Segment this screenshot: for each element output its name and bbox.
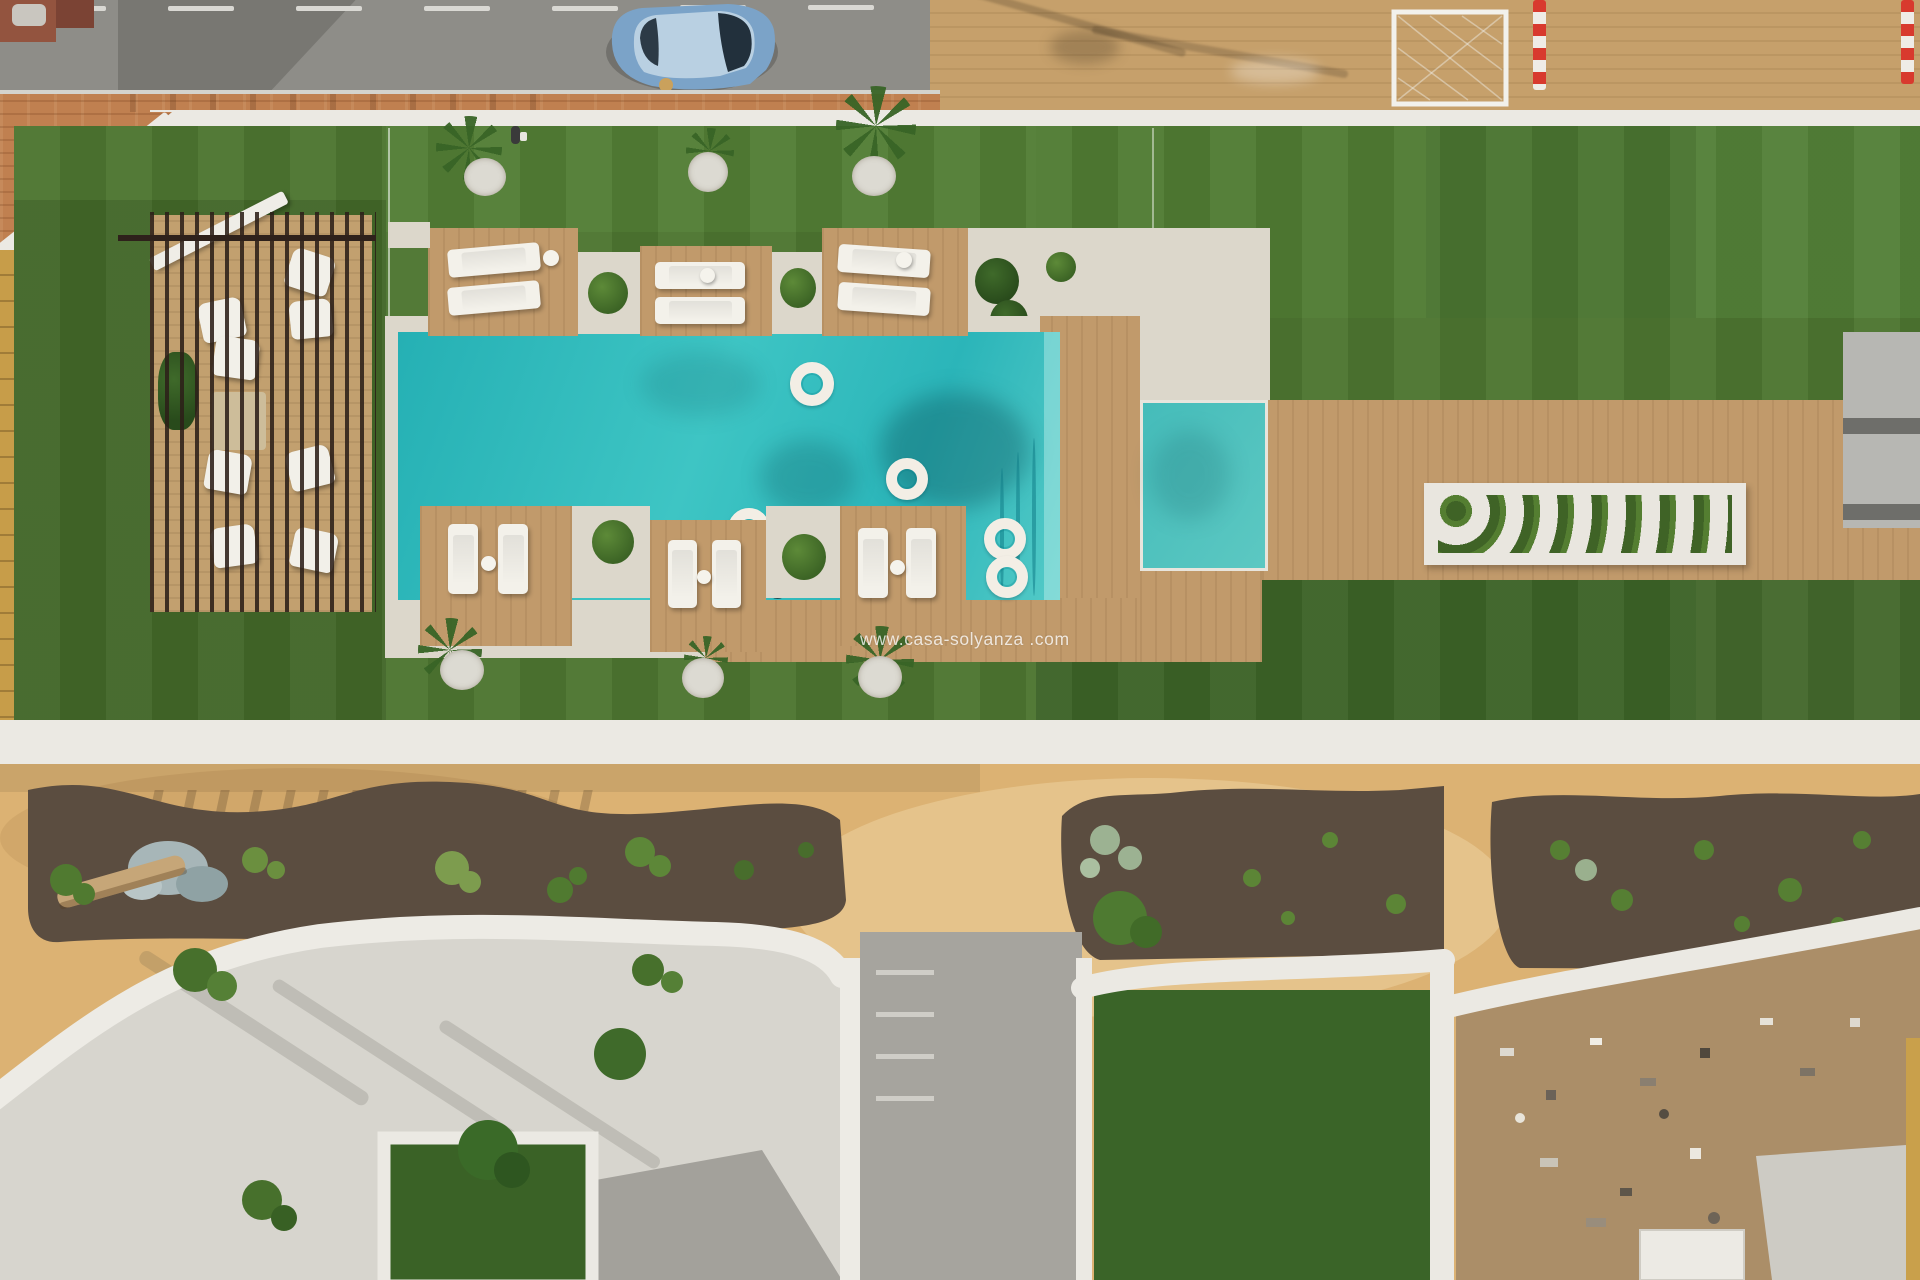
palm-plant [836, 86, 916, 166]
concrete-pavers [860, 932, 1082, 1280]
privacy-wall-vertical [1076, 958, 1092, 1280]
float-ring [886, 458, 928, 500]
parked-blue-car [600, 0, 780, 95]
pedestrian-bag [520, 132, 527, 141]
palm-shadow-on-water [640, 352, 760, 416]
gravel-corner [1756, 1144, 1920, 1280]
gravel-circle [852, 156, 896, 196]
sun-lounger [668, 540, 697, 608]
goal-net [1398, 16, 1502, 100]
sun-lounger [858, 528, 888, 598]
balcony-shadow-band [1843, 504, 1920, 520]
lane-marking [808, 5, 874, 10]
pool-shallow-shelf [1044, 332, 1060, 600]
lawn-seam [1152, 128, 1154, 230]
side-table [890, 560, 905, 575]
side-table [700, 268, 715, 283]
bush [780, 268, 816, 308]
side-table [481, 556, 496, 571]
bush [1046, 252, 1076, 282]
gravel-circle [688, 152, 728, 192]
white-planter-box [388, 222, 430, 248]
pavement-stain [1050, 30, 1120, 64]
gravel-circle [440, 650, 484, 690]
float-ring [984, 518, 1026, 560]
pergola-slats [150, 212, 376, 612]
lane-marking [168, 6, 234, 11]
side-table [543, 250, 559, 266]
lawn-square-middle [1094, 990, 1432, 1280]
privacy-wall-vertical [840, 958, 860, 1280]
gravel-circle [858, 656, 902, 698]
side-table [896, 252, 912, 268]
pavement-stain [1230, 58, 1320, 84]
white-shed [1640, 1230, 1744, 1280]
bush [782, 534, 826, 580]
sun-lounger [498, 524, 528, 594]
balcony-shadow-band [1843, 418, 1920, 434]
pergola-beam [118, 235, 376, 241]
deck-below-plunge-pool [1140, 563, 1262, 662]
garden-north-wall [0, 720, 1920, 764]
bush [975, 258, 1019, 304]
sun-lounger [448, 524, 478, 594]
sun-lounger [655, 297, 745, 324]
south-garden [0, 718, 1920, 1280]
parked-white-car [12, 4, 46, 26]
gravel-circle [682, 658, 724, 698]
bush [592, 520, 634, 564]
gold-wall-east-edge [1906, 1038, 1920, 1280]
pool-step [1032, 438, 1036, 596]
float-ring [986, 556, 1028, 598]
lane-marking [296, 6, 362, 11]
photo-watermark: www.casa-solyanza .com [860, 629, 1070, 650]
goal-frame [1390, 8, 1510, 108]
float-ring [790, 362, 834, 406]
planter-shrubs [1438, 495, 1732, 553]
pedestrian [511, 126, 520, 144]
side-table [697, 570, 711, 584]
palm-shadow-on-water [1150, 430, 1230, 520]
striped-barrier-pole [1901, 0, 1914, 84]
sun-lounger [712, 540, 741, 608]
striped-barrier-pole [1533, 0, 1546, 90]
bush [588, 272, 628, 314]
sun-lounger [906, 528, 936, 598]
palm-shadow-on-water [760, 440, 856, 514]
gravel-circle [464, 158, 506, 196]
lane-marking [424, 6, 490, 11]
rooftop [56, 0, 94, 28]
aerial-photo-pool-complex: www.casa-solyanza .com [0, 0, 1920, 1280]
